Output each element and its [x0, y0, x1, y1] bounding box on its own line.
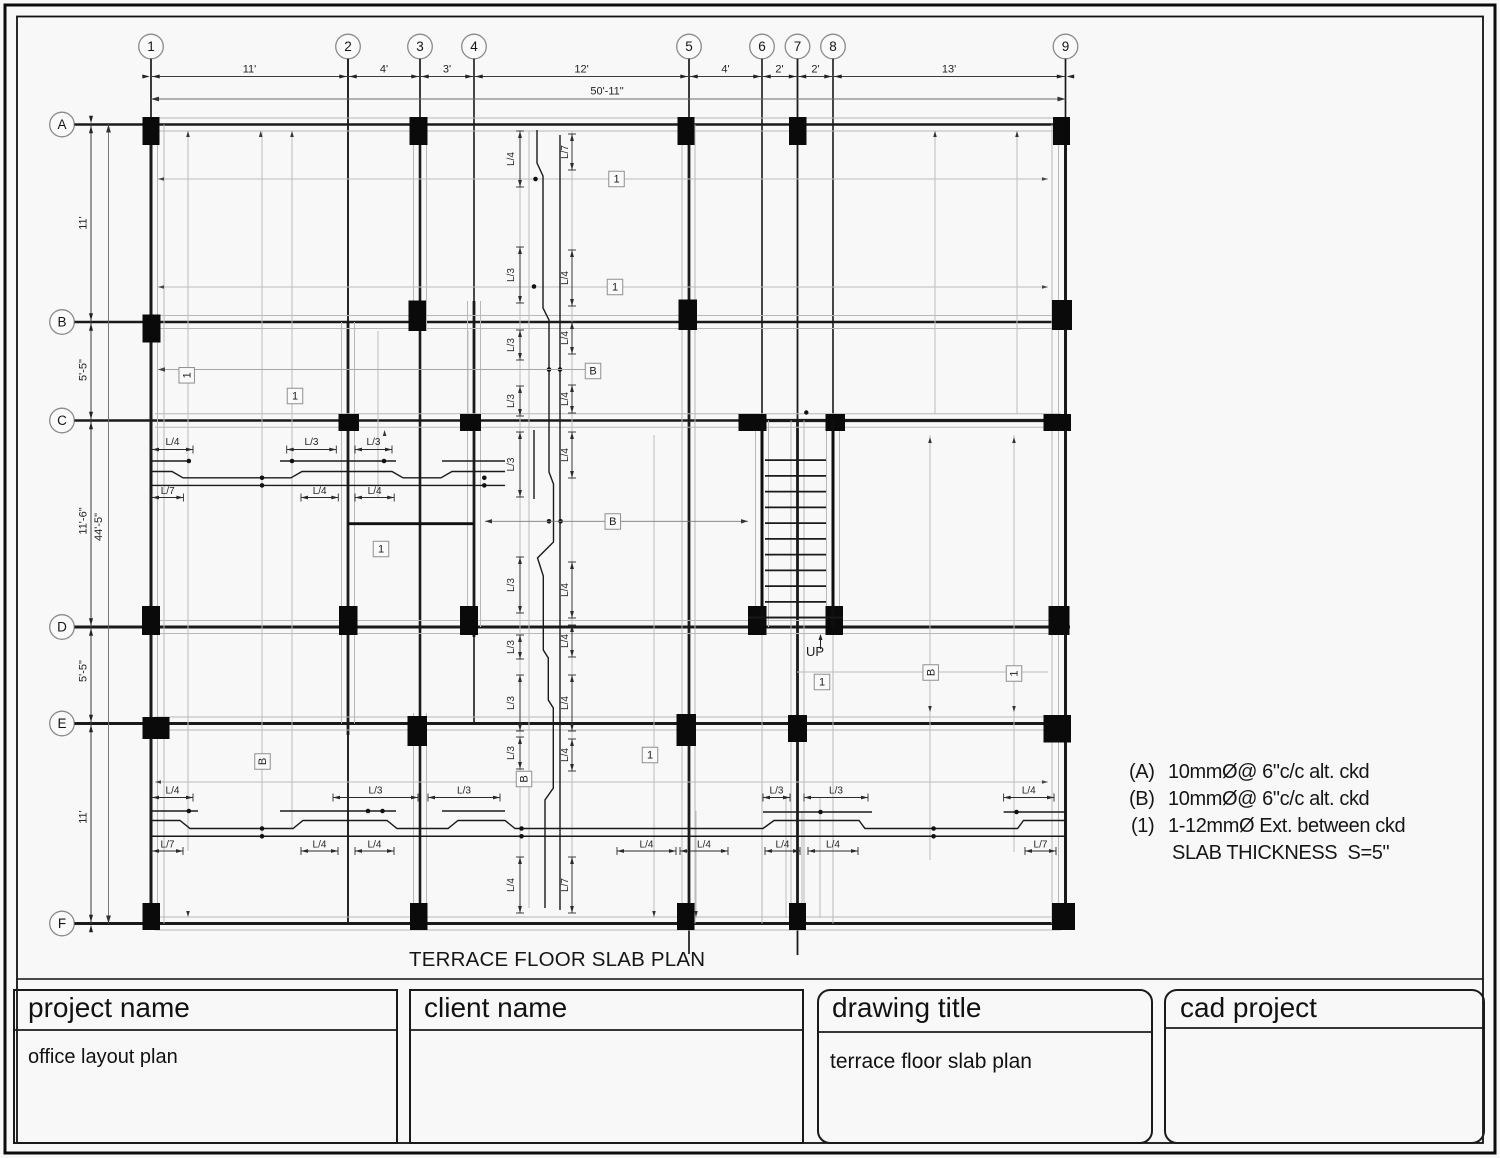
svg-text:11': 11'	[78, 810, 90, 824]
svg-text:E: E	[57, 716, 66, 731]
svg-text:(1): (1)	[1131, 815, 1154, 837]
svg-text:SLAB THICKNESS S=5": SLAB THICKNESS S=5"	[1172, 842, 1389, 864]
svg-text:(B): (B)	[1129, 788, 1154, 810]
svg-text:office layout plan: office layout plan	[28, 1046, 178, 1068]
svg-text:3: 3	[416, 39, 424, 54]
svg-text:L/4: L/4	[640, 840, 654, 851]
svg-text:A: A	[57, 117, 66, 132]
svg-text:10mmØ@ 6"c/c alt. ckd: 10mmØ@ 6"c/c alt. ckd	[1168, 761, 1369, 783]
svg-text:1: 1	[612, 282, 618, 294]
svg-text:L/4: L/4	[560, 634, 571, 648]
svg-text:L/4: L/4	[560, 271, 571, 285]
svg-text:L/3: L/3	[457, 786, 471, 797]
svg-text:project name: project name	[28, 992, 190, 1023]
svg-text:L/7: L/7	[161, 486, 175, 497]
svg-text:50'-11": 50'-11"	[590, 86, 623, 98]
svg-text:L/4: L/4	[560, 583, 571, 597]
svg-text:L/3: L/3	[506, 746, 517, 760]
svg-text:L/4: L/4	[560, 748, 571, 762]
svg-text:4': 4'	[721, 64, 729, 76]
svg-text:1: 1	[647, 750, 653, 762]
svg-text:L/4: L/4	[776, 840, 790, 851]
svg-text:2': 2'	[775, 64, 783, 76]
svg-text:8: 8	[829, 39, 837, 54]
svg-text:6: 6	[758, 39, 766, 54]
svg-text:7: 7	[794, 39, 802, 54]
svg-text:L/3: L/3	[367, 437, 381, 448]
svg-text:B: B	[609, 516, 616, 528]
svg-text:11': 11'	[78, 216, 90, 230]
svg-text:L/7: L/7	[1034, 840, 1048, 851]
svg-text:L/3: L/3	[506, 457, 517, 471]
svg-text:13': 13'	[942, 64, 956, 76]
svg-text:1: 1	[378, 544, 384, 556]
svg-text:drawing title: drawing title	[832, 992, 981, 1023]
svg-text:L/3: L/3	[506, 338, 517, 352]
svg-text:L/3: L/3	[506, 268, 517, 282]
svg-text:L/3: L/3	[506, 640, 517, 654]
svg-text:1: 1	[292, 391, 298, 403]
svg-text:F: F	[58, 916, 66, 931]
svg-text:B: B	[925, 669, 937, 676]
svg-text:L/7: L/7	[161, 840, 175, 851]
svg-text:L/3: L/3	[305, 437, 319, 448]
svg-text:B: B	[519, 775, 531, 782]
svg-text:L/3: L/3	[506, 578, 517, 592]
svg-text:C: C	[57, 413, 67, 428]
svg-text:4: 4	[470, 39, 478, 54]
svg-text:L/7: L/7	[560, 878, 571, 892]
svg-text:10mmØ@ 6"c/c alt. ckd: 10mmØ@ 6"c/c alt. ckd	[1168, 788, 1369, 810]
svg-text:terrace floor slab plan: terrace floor slab plan	[830, 1050, 1032, 1073]
svg-text:L/4: L/4	[506, 152, 517, 166]
svg-text:2': 2'	[811, 64, 819, 76]
svg-text:L/4: L/4	[697, 840, 711, 851]
svg-text:L/4: L/4	[313, 486, 327, 497]
svg-text:cad project: cad project	[1180, 992, 1317, 1023]
svg-text:L/4: L/4	[313, 840, 327, 851]
svg-text:L/4: L/4	[560, 331, 571, 345]
svg-text:L/4: L/4	[560, 448, 571, 462]
svg-text:L/3: L/3	[770, 786, 784, 797]
svg-text:B: B	[57, 315, 66, 330]
svg-text:4': 4'	[380, 64, 388, 76]
svg-text:12': 12'	[574, 64, 588, 76]
svg-text:L/7: L/7	[560, 145, 571, 159]
svg-text:UP: UP	[806, 644, 824, 659]
svg-text:L/4: L/4	[368, 840, 382, 851]
svg-text:L/3: L/3	[369, 786, 383, 797]
svg-text:5: 5	[685, 39, 693, 54]
svg-text:5'-5": 5'-5"	[78, 359, 90, 381]
svg-text:1-12mmØ Ext. between ckd: 1-12mmØ Ext. between ckd	[1168, 815, 1405, 837]
svg-text:1: 1	[147, 39, 155, 54]
svg-text:B: B	[257, 758, 269, 765]
svg-text:1: 1	[613, 174, 619, 186]
svg-text:(A): (A)	[1129, 761, 1154, 783]
svg-text:L/4: L/4	[368, 486, 382, 497]
svg-text:11': 11'	[243, 64, 257, 76]
svg-text:11'-6": 11'-6"	[78, 507, 90, 534]
svg-text:3': 3'	[443, 64, 451, 76]
svg-text:L/4: L/4	[166, 786, 180, 797]
svg-text:TERRACE FLOOR SLAB PLAN: TERRACE FLOOR SLAB PLAN	[409, 948, 705, 971]
svg-text:5'-5": 5'-5"	[78, 660, 90, 682]
svg-text:client name: client name	[424, 992, 567, 1023]
svg-text:L/4: L/4	[166, 437, 180, 448]
svg-text:1: 1	[819, 677, 825, 689]
svg-text:1: 1	[181, 372, 193, 378]
svg-text:L/4: L/4	[1022, 786, 1036, 797]
svg-text:9: 9	[1062, 39, 1070, 54]
svg-text:L/3: L/3	[506, 696, 517, 710]
svg-text:44'-5": 44'-5"	[93, 513, 105, 541]
svg-text:D: D	[57, 620, 67, 635]
svg-text:L/4: L/4	[506, 878, 517, 892]
svg-text:B: B	[589, 366, 596, 378]
svg-text:L/3: L/3	[506, 394, 517, 408]
svg-text:2: 2	[344, 39, 352, 54]
svg-text:1: 1	[1009, 670, 1021, 676]
svg-text:L/4: L/4	[826, 840, 840, 851]
svg-text:L/3: L/3	[829, 786, 843, 797]
svg-text:L/4: L/4	[560, 696, 571, 710]
svg-text:L/4: L/4	[560, 392, 571, 406]
